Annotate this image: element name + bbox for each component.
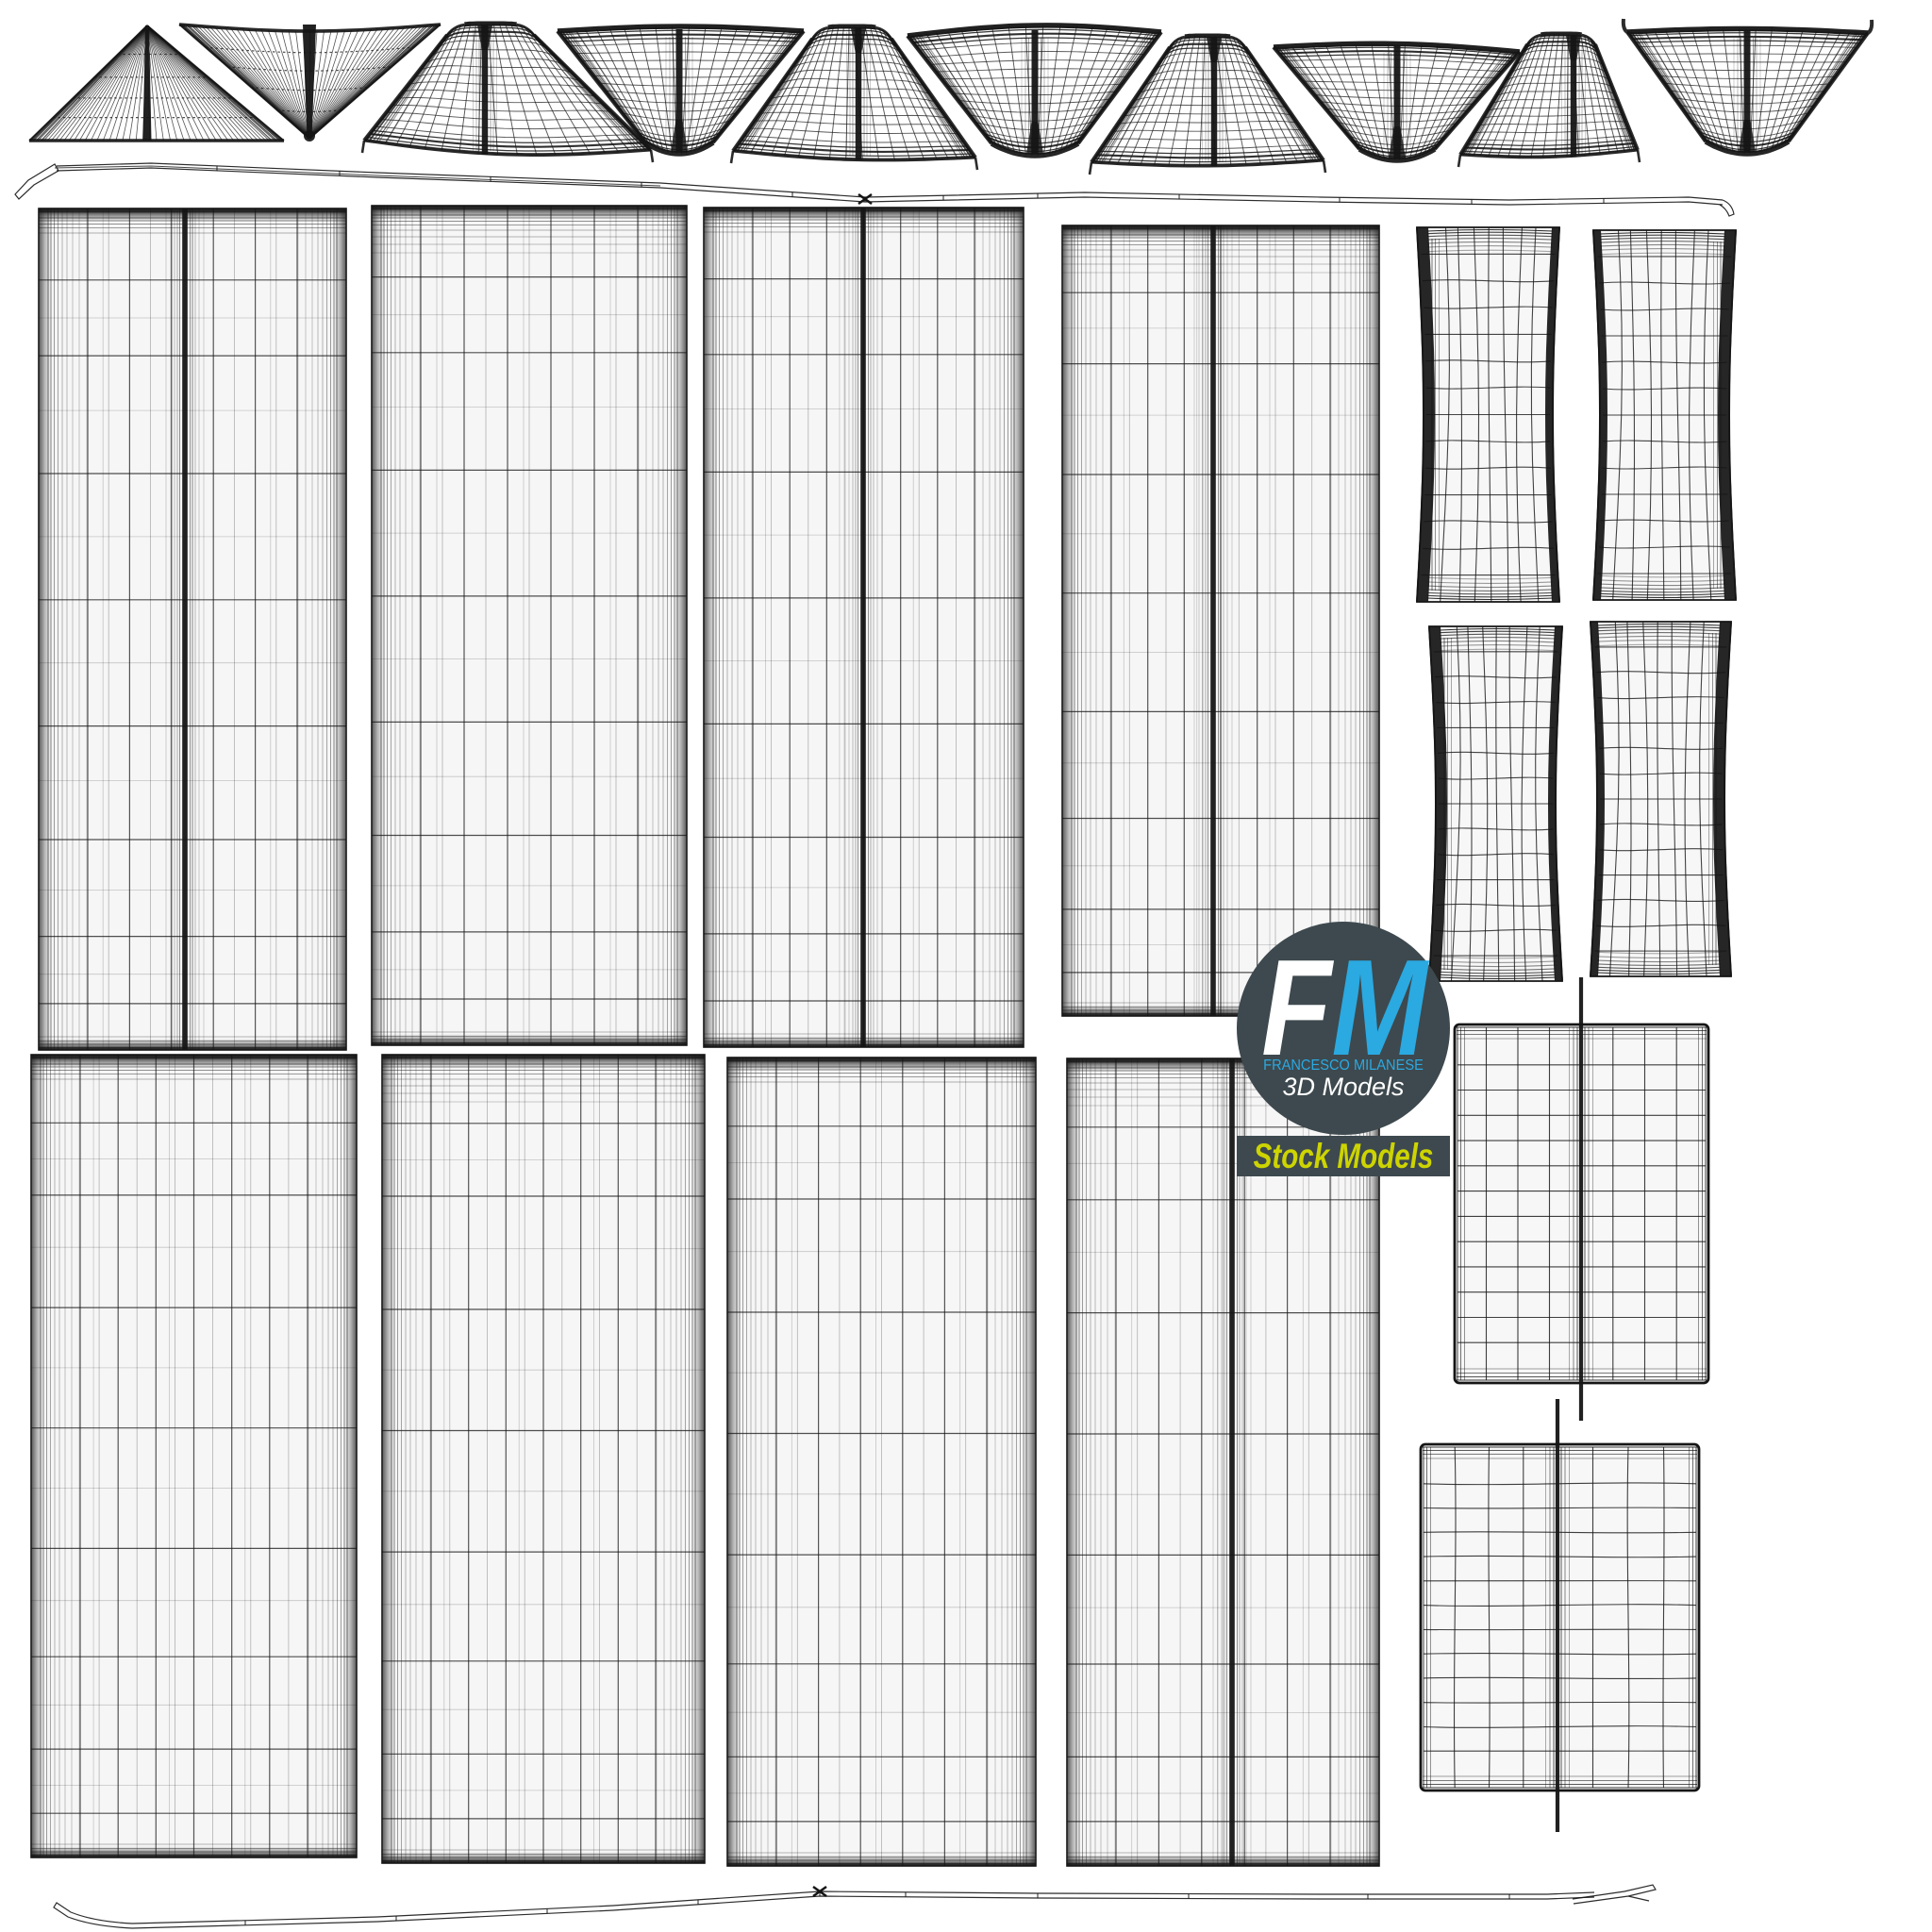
svg-text:3D Models: 3D Models: [1282, 1073, 1404, 1101]
svg-text:Stock Models: Stock Models: [1254, 1138, 1434, 1176]
svg-text:FRANCESCO MILANESE: FRANCESCO MILANESE: [1263, 1057, 1424, 1074]
